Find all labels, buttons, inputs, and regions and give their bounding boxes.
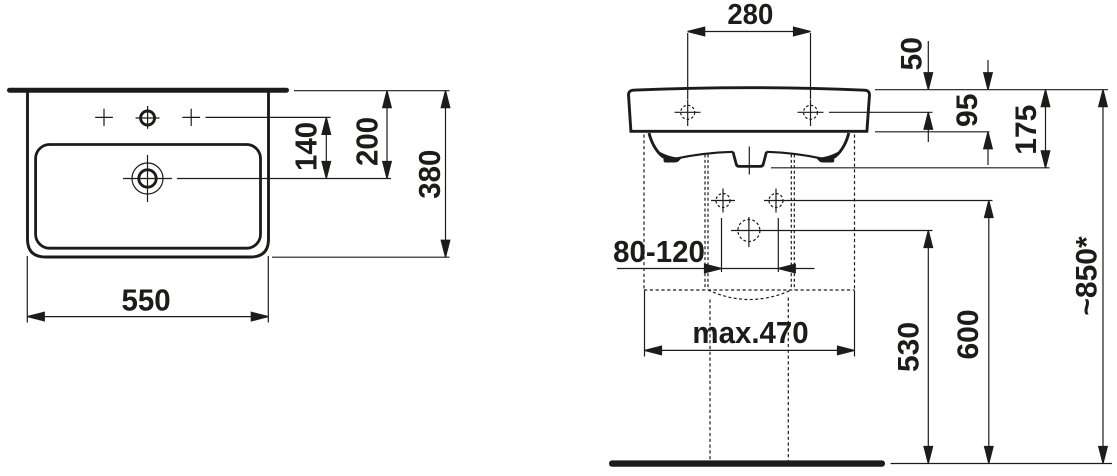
svg-text:80-120: 80-120: [613, 235, 705, 269]
svg-text:95: 95: [951, 94, 984, 127]
svg-text:530: 530: [893, 322, 926, 372]
svg-text:600: 600: [952, 309, 985, 359]
svg-text:~850*: ~850*: [1071, 236, 1104, 316]
svg-text:140: 140: [290, 122, 324, 171]
svg-text:200: 200: [351, 117, 385, 166]
svg-text:175: 175: [1010, 105, 1043, 155]
svg-text:50: 50: [896, 37, 929, 70]
svg-text:380: 380: [413, 150, 447, 199]
svg-text:280: 280: [727, 0, 773, 30]
svg-text:max.470: max.470: [692, 316, 808, 350]
svg-text:550: 550: [121, 284, 170, 318]
